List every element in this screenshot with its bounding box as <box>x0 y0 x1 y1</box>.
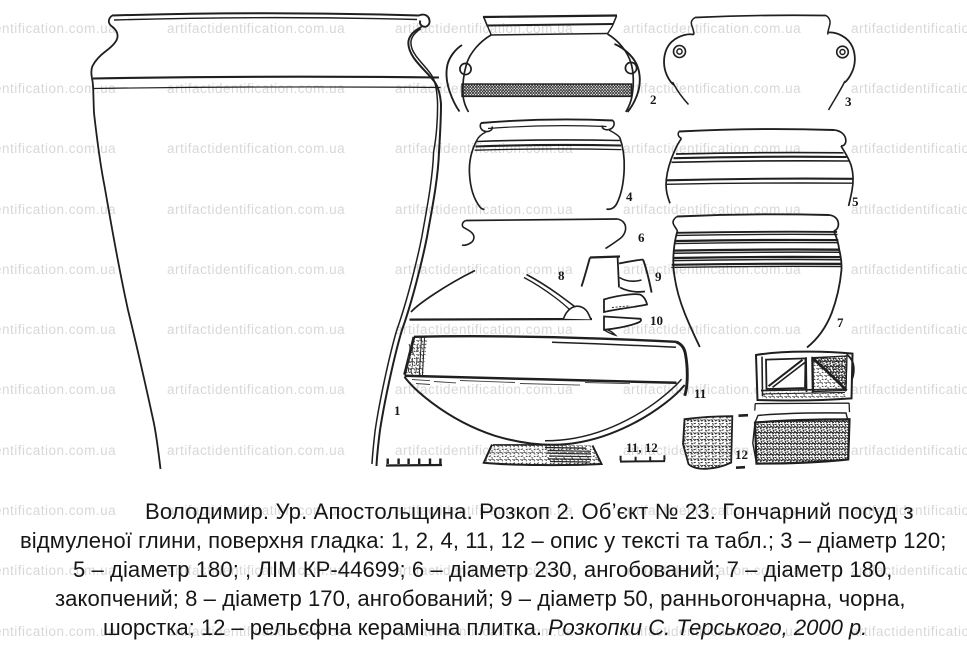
svg-text:12: 12 <box>735 447 748 462</box>
svg-text:4: 4 <box>626 189 633 204</box>
svg-text:5: 5 <box>852 194 859 209</box>
svg-text:9: 9 <box>655 269 662 284</box>
svg-text:2: 2 <box>650 92 657 107</box>
svg-text:3: 3 <box>845 94 852 109</box>
svg-text:11, 12: 11, 12 <box>626 440 658 455</box>
svg-text:11: 11 <box>694 386 706 401</box>
svg-text:6: 6 <box>638 230 645 245</box>
svg-text:10: 10 <box>650 313 663 328</box>
svg-text:1: 1 <box>394 403 401 418</box>
svg-text:8: 8 <box>558 268 565 283</box>
svg-text:7: 7 <box>837 315 844 330</box>
